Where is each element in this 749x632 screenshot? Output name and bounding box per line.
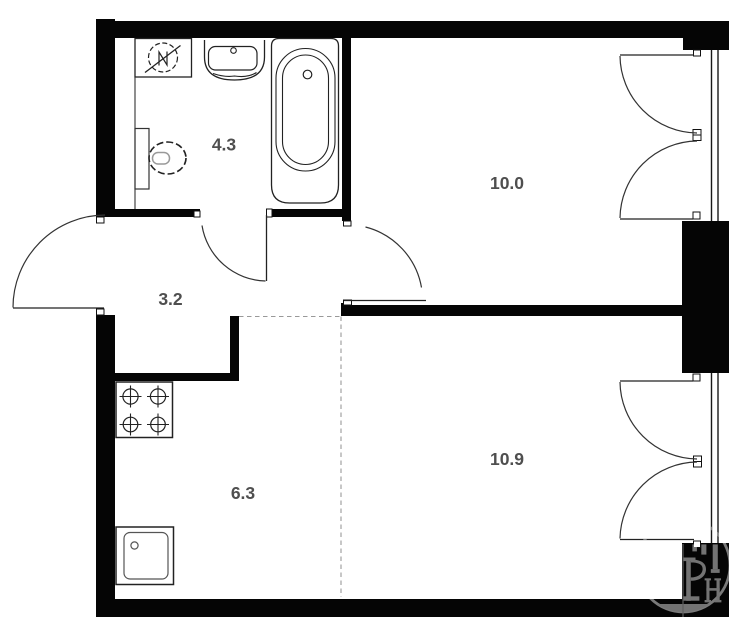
svg-text:10.0: 10.0 <box>490 173 524 193</box>
svg-text:10.9: 10.9 <box>490 449 524 469</box>
svg-text:4.3: 4.3 <box>212 135 237 155</box>
svg-text:6.3: 6.3 <box>231 483 256 503</box>
svg-text:3.2: 3.2 <box>158 289 183 309</box>
